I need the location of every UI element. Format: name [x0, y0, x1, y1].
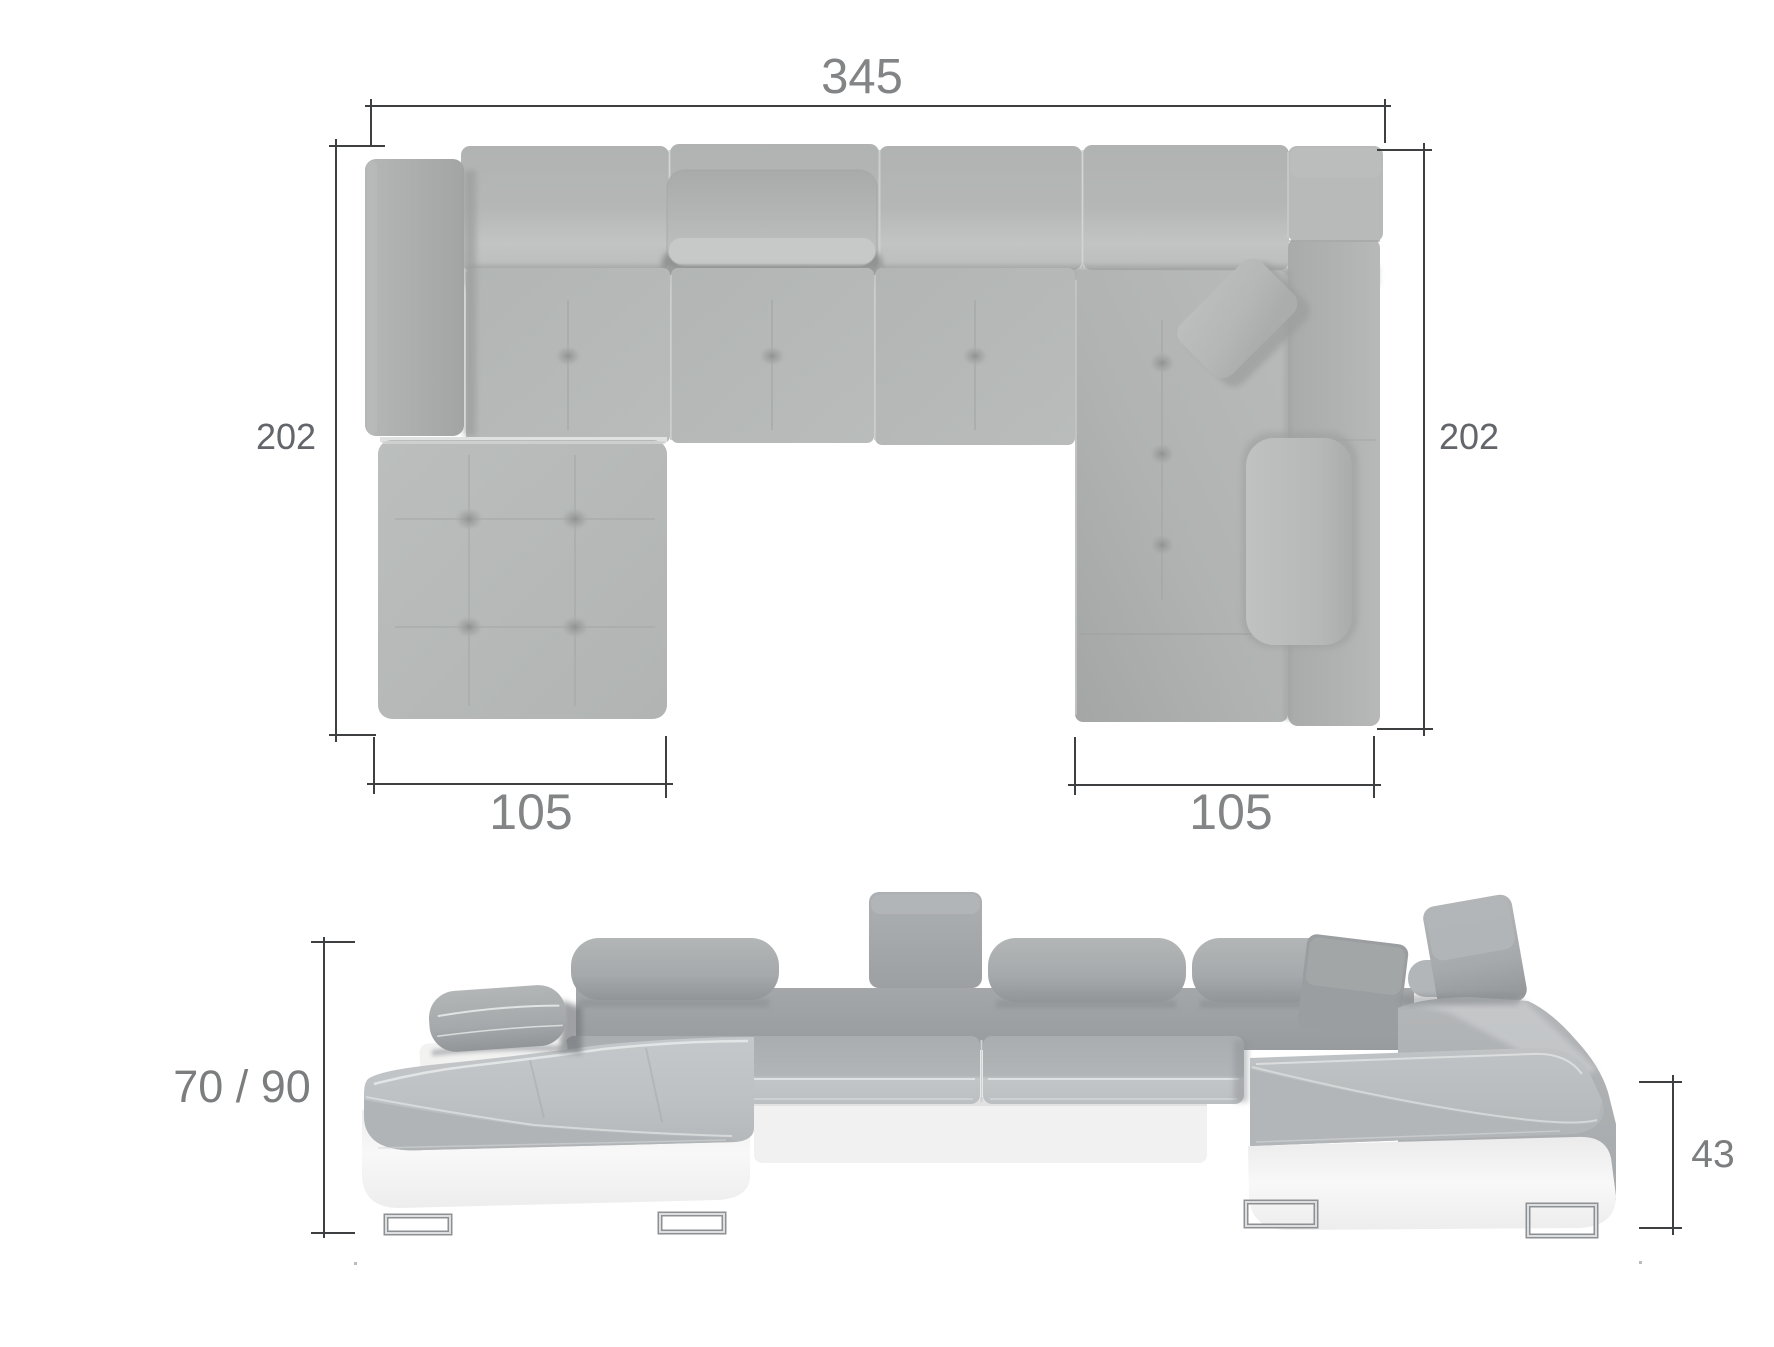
- svg-text:70 / 90: 70 / 90: [173, 1061, 311, 1112]
- svg-text:43: 43: [1691, 1133, 1734, 1176]
- svg-text:345: 345: [821, 50, 903, 104]
- svg-text:105: 105: [1189, 784, 1272, 840]
- svg-text:105: 105: [489, 784, 572, 840]
- svg-text:202: 202: [256, 416, 316, 457]
- svg-text:202: 202: [1439, 416, 1499, 457]
